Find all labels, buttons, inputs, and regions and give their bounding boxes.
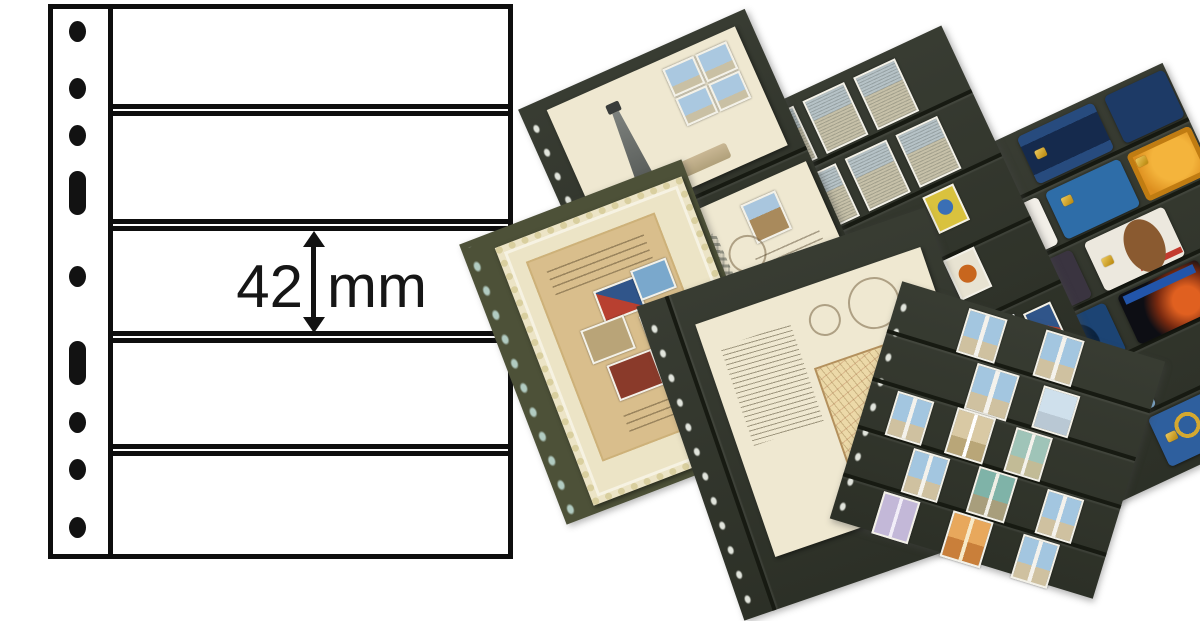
chip <box>1135 155 1149 168</box>
product-photo-collage <box>0 0 1200 573</box>
stamp-lighthouse <box>1010 534 1060 589</box>
postmark <box>805 300 846 341</box>
chip <box>1034 147 1048 160</box>
chip <box>1165 430 1179 443</box>
chip <box>1101 255 1115 268</box>
phonecard-emblem <box>1147 383 1200 467</box>
chip <box>1060 194 1074 207</box>
handwriting <box>720 324 824 446</box>
